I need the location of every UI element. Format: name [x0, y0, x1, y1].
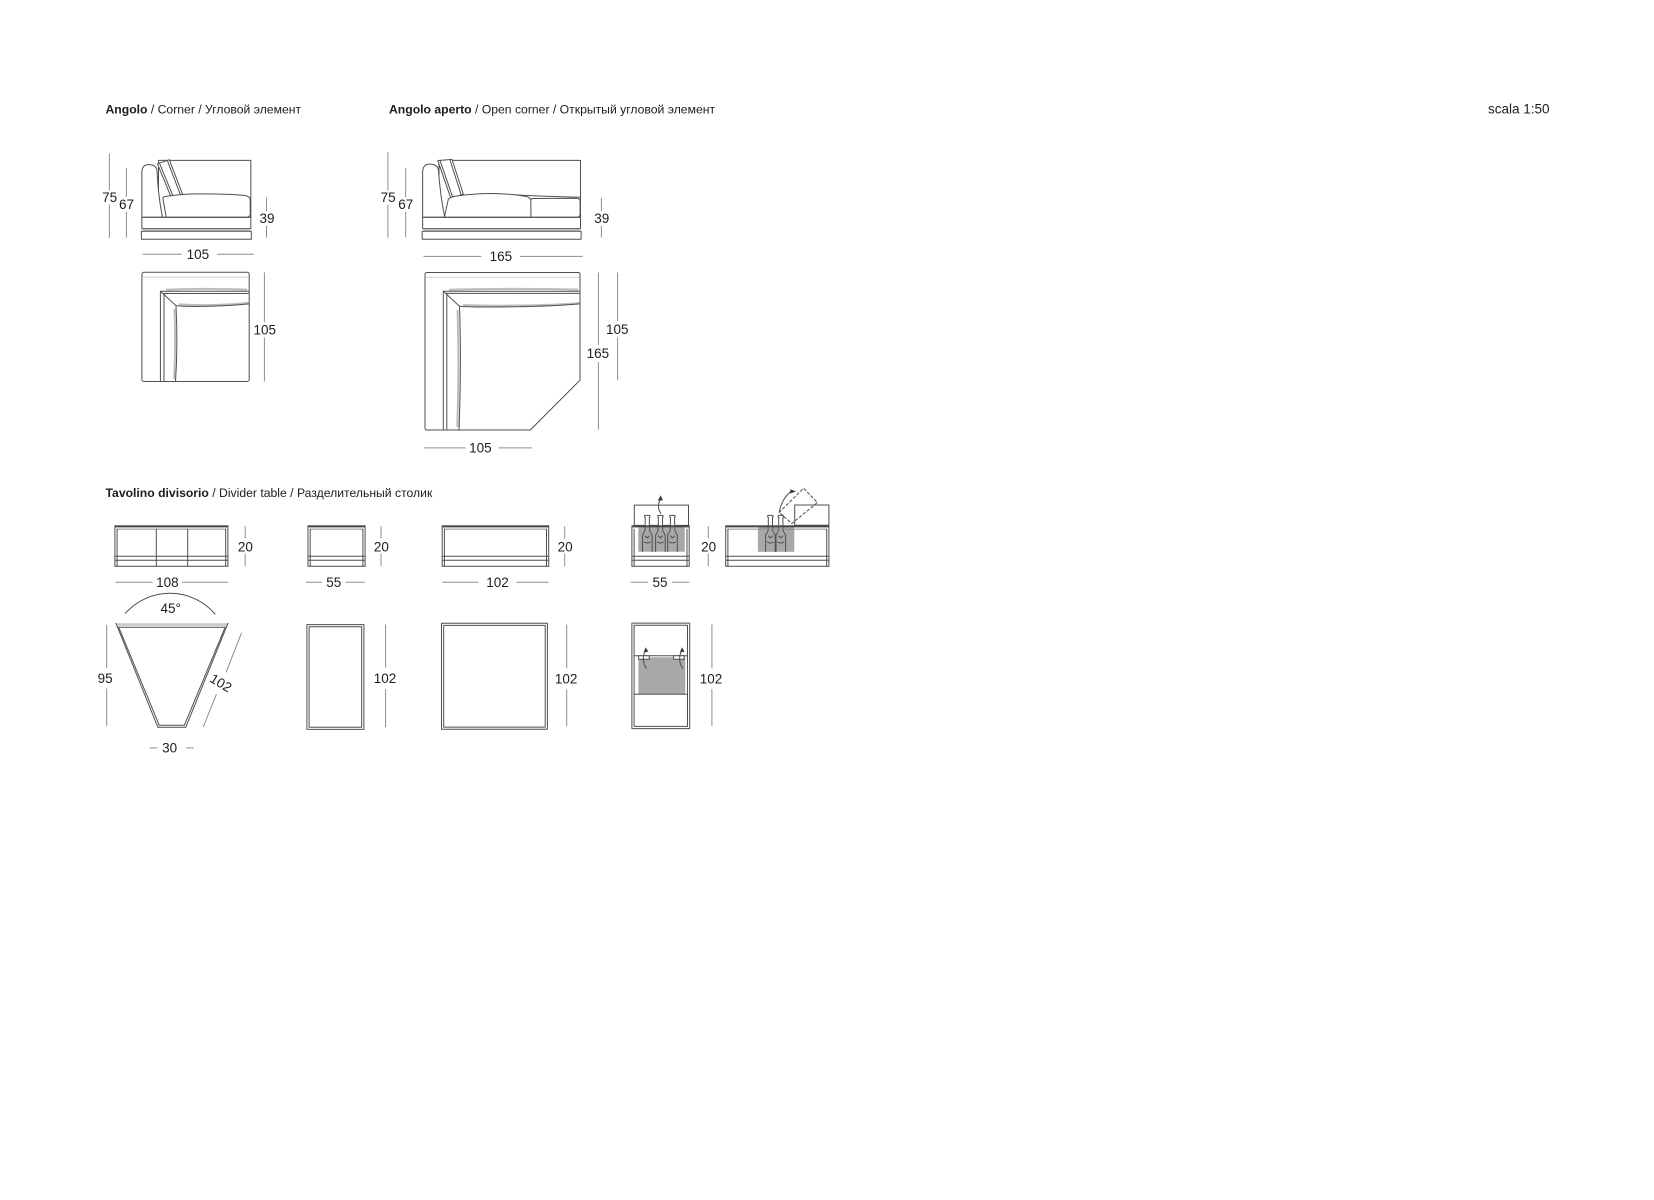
svg-text:Angolo / Corner / Угловой элем: Angolo / Corner / Угловой элемент — [106, 103, 302, 117]
svg-text:165: 165 — [490, 249, 513, 264]
svg-text:105: 105 — [254, 323, 277, 338]
svg-text:102: 102 — [555, 672, 578, 687]
svg-text:102: 102 — [486, 575, 509, 590]
svg-text:Angolo aperto / Open corner /: Angolo aperto / Open corner / Открытый у… — [389, 103, 715, 117]
svg-text:95: 95 — [98, 671, 113, 686]
svg-text:20: 20 — [701, 540, 716, 555]
svg-text:75: 75 — [381, 190, 396, 205]
svg-text:67: 67 — [119, 197, 134, 212]
svg-text:105: 105 — [187, 247, 210, 262]
svg-text:20: 20 — [374, 540, 389, 555]
svg-text:67: 67 — [398, 197, 413, 212]
svg-text:30: 30 — [162, 741, 177, 756]
svg-text:20: 20 — [238, 540, 253, 555]
svg-text:102: 102 — [374, 671, 397, 686]
svg-text:105: 105 — [606, 322, 629, 337]
svg-text:55: 55 — [326, 575, 341, 590]
svg-text:105: 105 — [469, 441, 492, 456]
svg-text:scala 1:50: scala 1:50 — [1488, 102, 1550, 117]
svg-text:39: 39 — [259, 211, 274, 226]
svg-text:Tavolino divisorio / Divider t: Tavolino divisorio / Divider table / Раз… — [106, 486, 433, 500]
svg-text:55: 55 — [652, 575, 667, 590]
svg-text:165: 165 — [587, 346, 610, 361]
svg-text:20: 20 — [558, 540, 573, 555]
svg-text:39: 39 — [594, 211, 609, 226]
svg-text:45°: 45° — [160, 601, 180, 616]
svg-text:75: 75 — [102, 190, 117, 205]
svg-text:108: 108 — [156, 575, 179, 590]
svg-text:102: 102 — [700, 671, 723, 686]
